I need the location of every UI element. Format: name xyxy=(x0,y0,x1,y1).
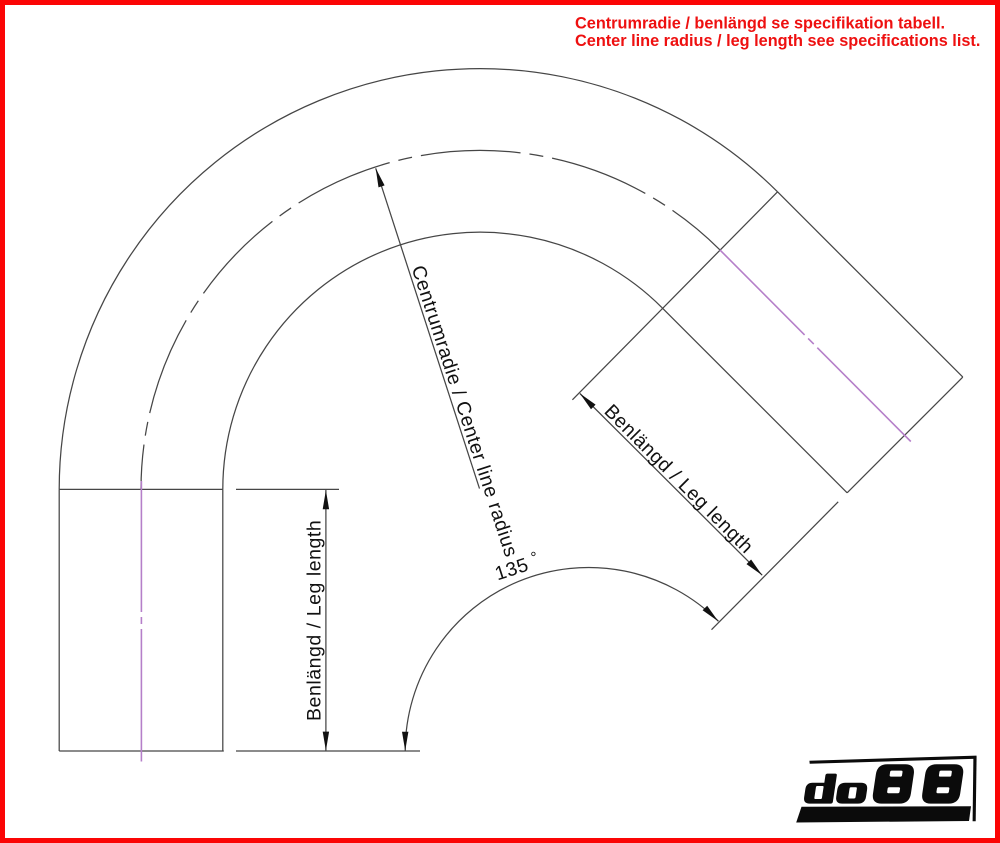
svg-text:Centrumradie / benlängd se spe: Centrumradie / benlängd se specifikation… xyxy=(575,15,945,33)
svg-text:Center line radius / leg lengt: Center line radius / leg length see spec… xyxy=(575,32,980,50)
svg-text:Benlängd / Leg length: Benlängd / Leg length xyxy=(304,520,326,721)
svg-text:Benlängd / Leg length: Benlängd / Leg length xyxy=(600,400,758,558)
svg-text:Centrumradie / Center line rad: Centrumradie / Center line radius xyxy=(407,263,522,560)
